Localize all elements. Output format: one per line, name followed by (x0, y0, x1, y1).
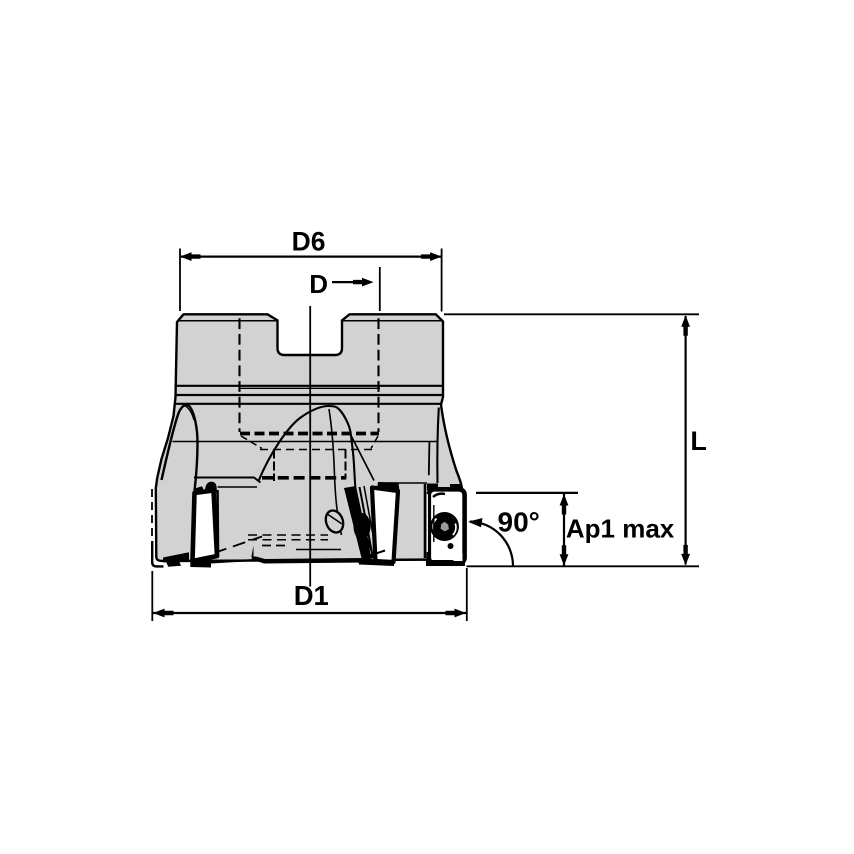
svg-text:D1: D1 (294, 580, 329, 611)
svg-text:D: D (309, 269, 328, 299)
svg-text:D6: D6 (292, 227, 326, 257)
svg-text:Ap1 max: Ap1 max (566, 514, 675, 544)
svg-text:L: L (690, 426, 707, 456)
svg-text:90°: 90° (498, 506, 540, 537)
